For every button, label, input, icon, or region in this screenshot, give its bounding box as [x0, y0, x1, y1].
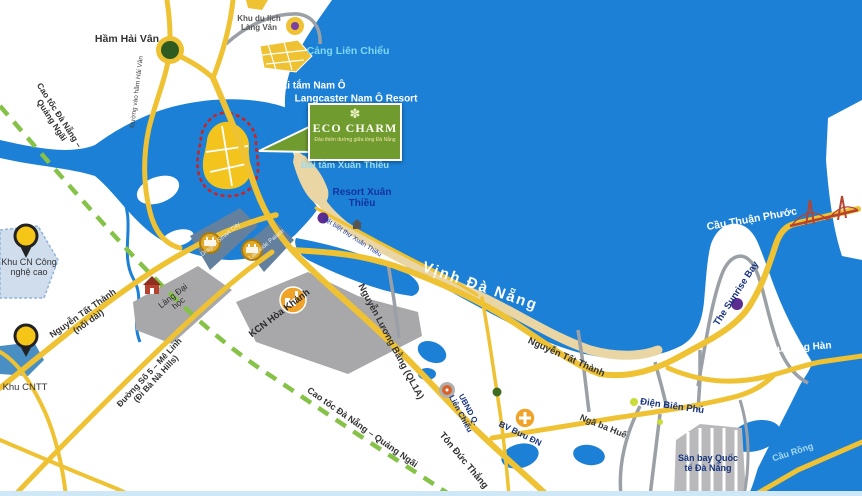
- hospital-icon: [515, 408, 535, 428]
- eco-charm-name: ECO CHARM: [310, 121, 400, 136]
- label-khu-cntt: Khu CNTT: [3, 383, 48, 393]
- lake: [572, 442, 607, 467]
- eco-charm-tagline: Đảo thiên đường giữa lòng Đà Nẵng: [310, 137, 400, 143]
- cross-road: [650, 414, 660, 496]
- junction-dot-icon: [630, 398, 638, 406]
- label-langcaster: Langcaster Nam Ô Resort: [295, 94, 418, 105]
- connector-road: [482, 298, 509, 496]
- airport-west-road: [620, 406, 640, 496]
- scenic-dot-core: [291, 22, 299, 30]
- junction-dot-icon: [493, 388, 502, 397]
- seaport-icon-small: [246, 0, 268, 10]
- label-khu-cn-cong-nghe-cao: Khu CN Công nghệ cao: [0, 258, 58, 278]
- label-ham-hai-van: Hầm Hải Vân: [95, 34, 159, 46]
- label-bai-tam-xuan-thieu: Bãi tắm Xuân Thiều: [301, 161, 389, 171]
- eco-charm-emblem-icon: ✽: [310, 107, 400, 121]
- junction-dot-icon: [657, 419, 663, 425]
- danang-location-map: ✽ ECO CHARM Đảo thiên đường giữa lòng Đà…: [0, 0, 862, 496]
- map-canvas: [0, 0, 862, 496]
- eco-charm-callout: ✽ ECO CHARM Đảo thiên đường giữa lòng Đà…: [308, 103, 402, 161]
- label-resort-xuan-thieu: Resort Xuân Thiều: [325, 187, 399, 209]
- bottom-strip: [0, 491, 862, 496]
- label-khu-du-lich-lang-van: Khu du lịch Làng Vân: [233, 15, 285, 33]
- label-cang-lien-chieu: Cảng Liên Chiểu: [307, 46, 390, 58]
- label-san-bay: Sân bay Quốc tế Đà Nẵng: [676, 454, 740, 474]
- water-layer: [0, 0, 862, 496]
- lake: [414, 337, 450, 368]
- label-bai-tam-nam-o: Bãi tắm Nam Ô: [274, 81, 345, 92]
- tunnel-icon-core: [161, 41, 179, 59]
